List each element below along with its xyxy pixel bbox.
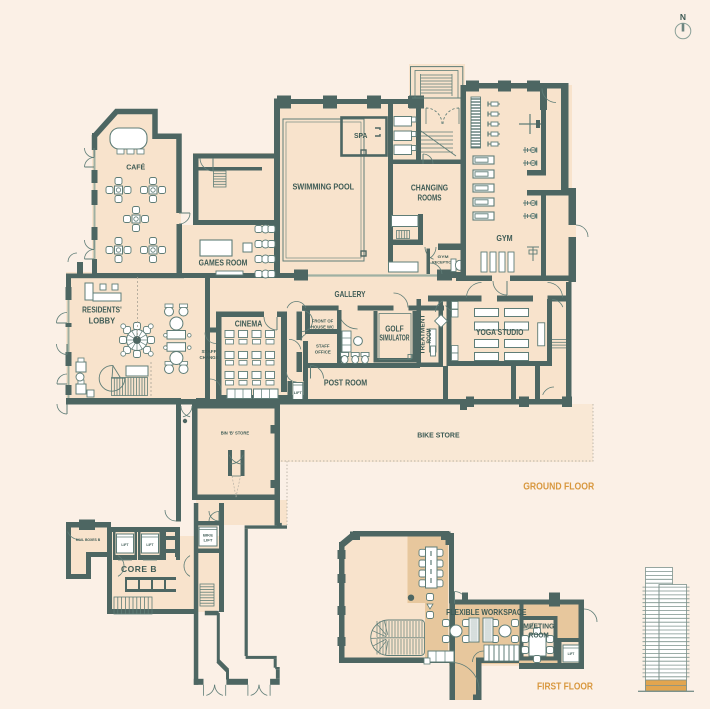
svg-text:LIFT: LIFT	[294, 391, 303, 395]
svg-text:GYM: GYM	[438, 255, 449, 259]
svg-text:RESIDENTS': RESIDENTS'	[82, 305, 122, 315]
svg-text:BIN 'B' STORE: BIN 'B' STORE	[221, 431, 249, 436]
svg-text:LIFT: LIFT	[568, 652, 575, 656]
svg-text:HOUSE WC: HOUSE WC	[311, 325, 334, 331]
svg-text:YOGA STUDIO: YOGA STUDIO	[476, 327, 524, 337]
svg-text:FLEXIBLE WORKSPACE: FLEXIBLE WORKSPACE	[446, 607, 527, 617]
svg-text:STAFF: STAFF	[202, 349, 217, 354]
svg-text:FRONT OF: FRONT OF	[312, 319, 334, 325]
svg-text:GALLERY: GALLERY	[335, 289, 366, 299]
svg-text:GYM: GYM	[496, 234, 513, 243]
svg-text:MAIL BOXES B: MAIL BOXES B	[76, 538, 101, 542]
svg-text:CINEMA: CINEMA	[235, 319, 263, 329]
svg-text:ROOMS: ROOMS	[418, 194, 443, 203]
svg-text:SIMULATOR: SIMULATOR	[380, 334, 410, 343]
svg-text:ROOM: ROOM	[529, 631, 549, 640]
svg-text:BIKE STORE: BIKE STORE	[417, 431, 459, 440]
svg-text:GROUND FLOOR: GROUND FLOOR	[523, 482, 595, 493]
svg-text:CHANGING: CHANGING	[411, 184, 448, 193]
svg-text:OFFICE: OFFICE	[315, 350, 332, 356]
svg-text:ROOM: ROOM	[426, 329, 433, 344]
svg-text:LIFT: LIFT	[204, 539, 214, 543]
svg-text:GAMES ROOM: GAMES ROOM	[199, 259, 248, 268]
svg-text:STAFF: STAFF	[316, 344, 330, 350]
svg-text:FIRST FLOOR: FIRST FLOOR	[537, 682, 594, 693]
svg-text:SPA: SPA	[354, 131, 368, 140]
svg-text:N: N	[680, 12, 686, 22]
svg-text:BIKE: BIKE	[203, 534, 214, 538]
svg-text:LOBBY: LOBBY	[89, 316, 116, 326]
svg-text:LIFT: LIFT	[121, 543, 129, 547]
svg-text:SWIMMING POOL: SWIMMING POOL	[292, 183, 354, 192]
svg-text:POST ROOM: POST ROOM	[324, 378, 367, 388]
svg-text:LIFT: LIFT	[146, 543, 154, 547]
svg-text:CORE B: CORE B	[121, 564, 157, 574]
svg-text:MEETING: MEETING	[523, 622, 554, 631]
svg-text:CHANGE: CHANGE	[200, 355, 219, 360]
svg-text:CAFÉ: CAFÉ	[126, 162, 145, 171]
svg-text:GOLF: GOLF	[385, 325, 404, 334]
